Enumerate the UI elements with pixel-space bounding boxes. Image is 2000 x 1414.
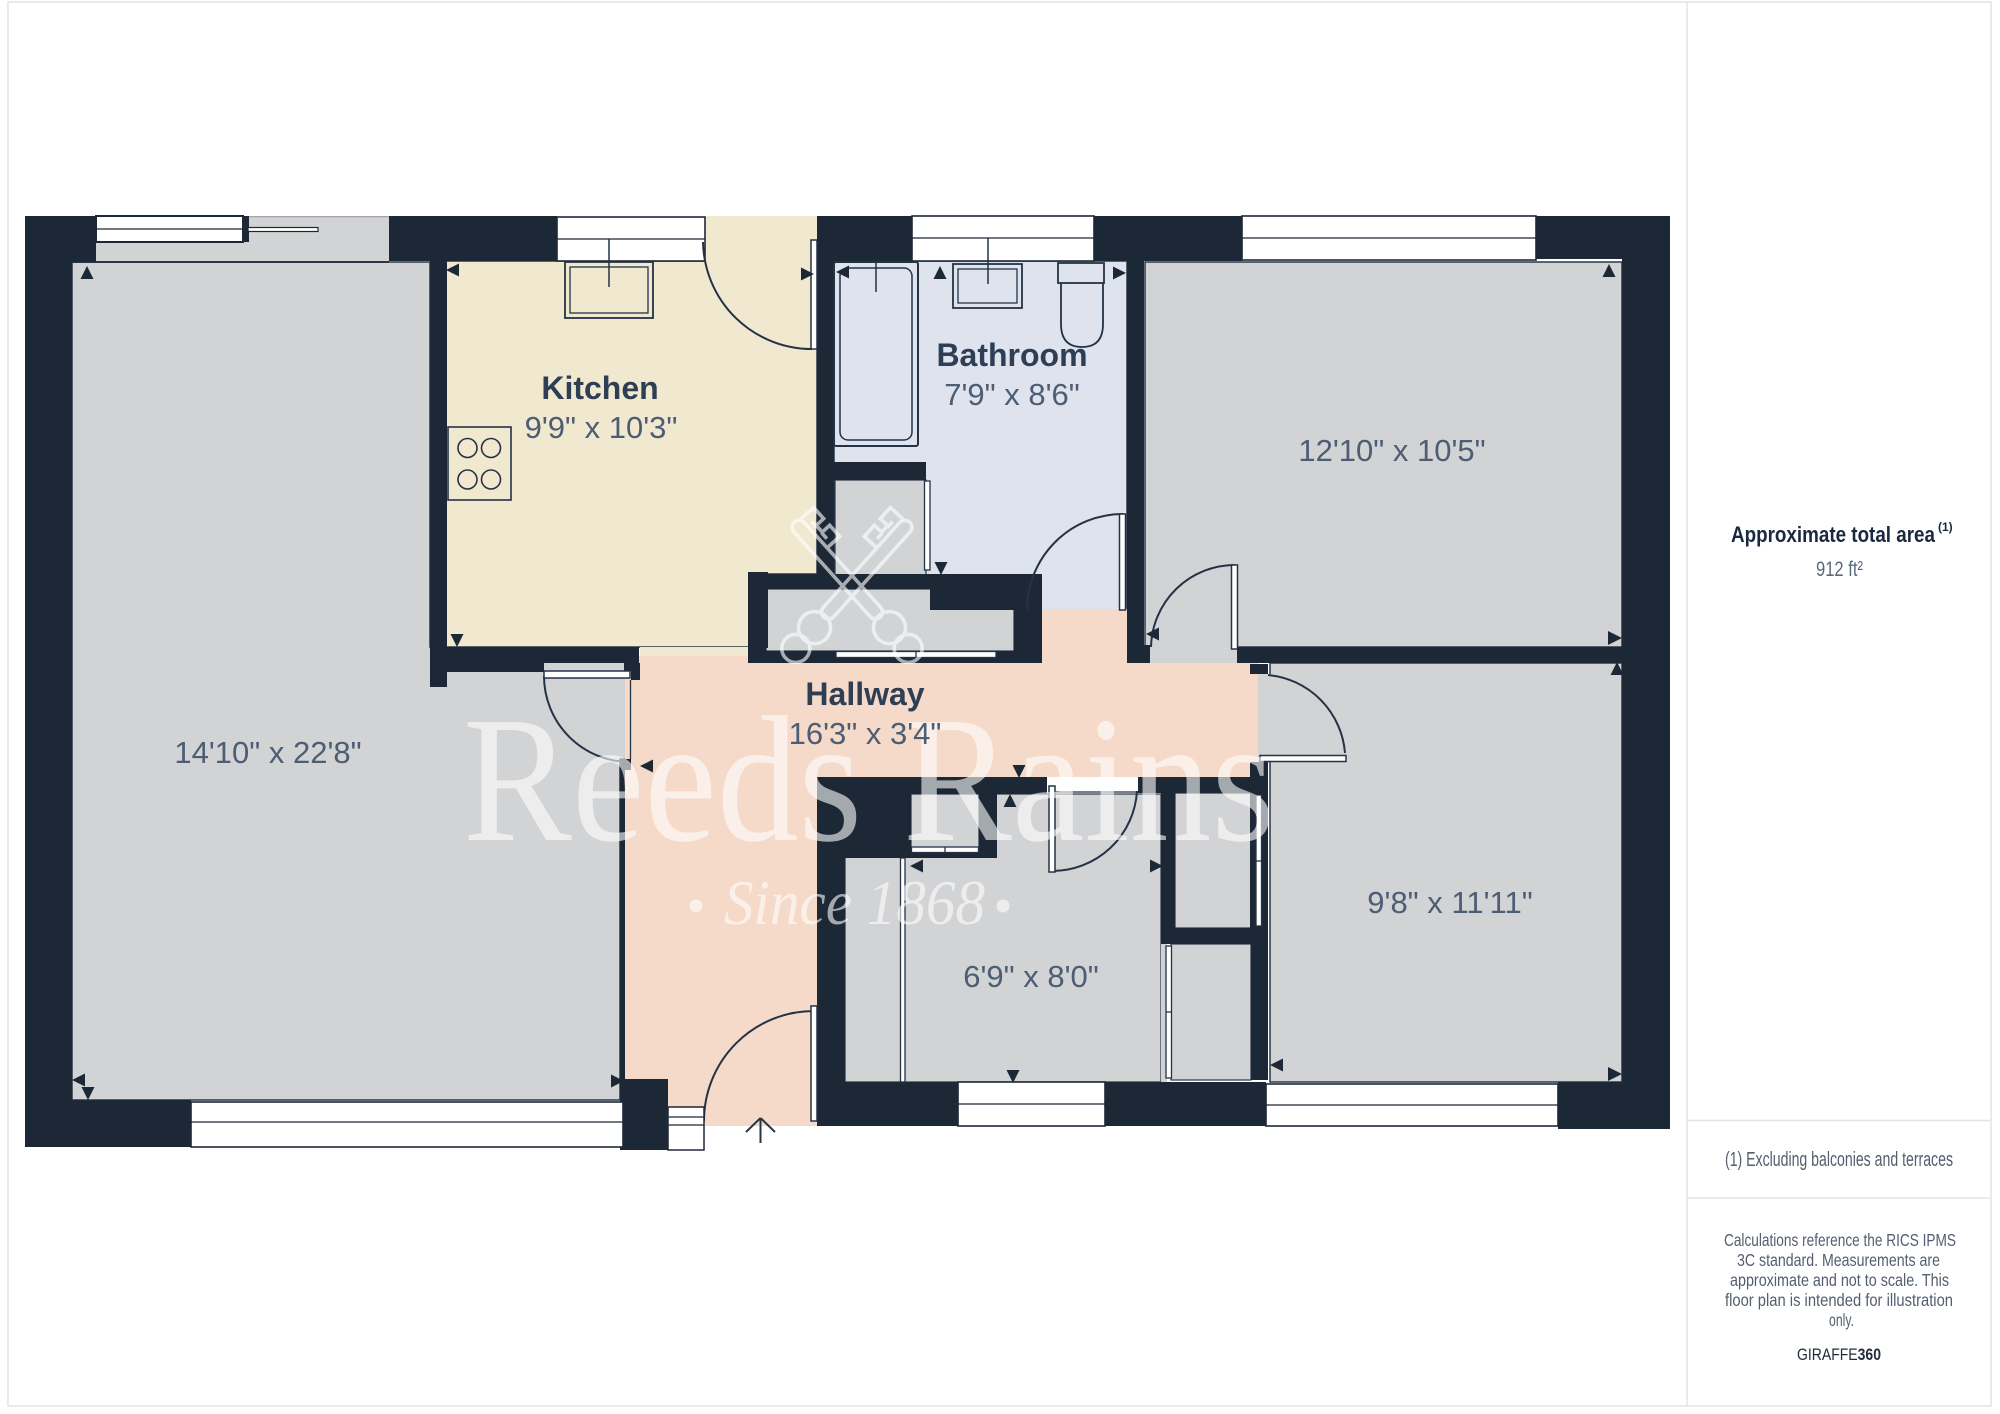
svg-text:9'9" x 10'3": 9'9" x 10'3" xyxy=(525,410,678,445)
svg-text:3C standard. Measurements are: 3C standard. Measurements are xyxy=(1737,1250,1940,1270)
svg-text:16'3" x 3'4": 16'3" x 3'4" xyxy=(789,716,942,751)
svg-text:GIRAFFE360: GIRAFFE360 xyxy=(1797,1345,1881,1364)
svg-text:912 ft²: 912 ft² xyxy=(1816,558,1863,581)
svg-text:6'9" x 8'0": 6'9" x 8'0" xyxy=(963,959,1099,994)
svg-text:Bathroom: Bathroom xyxy=(936,337,1087,373)
svg-text:only.: only. xyxy=(1829,1310,1854,1330)
svg-text:7'9" x 8'6": 7'9" x 8'6" xyxy=(944,377,1080,412)
svg-text:Kitchen: Kitchen xyxy=(541,370,658,406)
svg-text:Calculations reference the RIC: Calculations reference the RICS IPMS xyxy=(1724,1230,1956,1250)
svg-text:9'8" x 11'11": 9'8" x 11'11" xyxy=(1367,885,1532,920)
svg-text:Since 1868: Since 1868 xyxy=(724,867,985,938)
svg-text:(1): (1) xyxy=(1938,520,1953,534)
svg-text:floor plan is intended for ill: floor plan is intended for illustration xyxy=(1725,1290,1953,1310)
svg-text:14'10" x 22'8": 14'10" x 22'8" xyxy=(174,735,361,770)
svg-text:(1) Excluding balconies and te: (1) Excluding balconies and terraces xyxy=(1725,1149,1953,1171)
svg-text:approximate and not to scale.: approximate and not to scale. This xyxy=(1730,1270,1949,1290)
svg-text:12'10" x 10'5": 12'10" x 10'5" xyxy=(1298,433,1485,468)
svg-text:Hallway: Hallway xyxy=(805,676,924,712)
svg-text:Approximate total area: Approximate total area xyxy=(1731,522,1936,547)
